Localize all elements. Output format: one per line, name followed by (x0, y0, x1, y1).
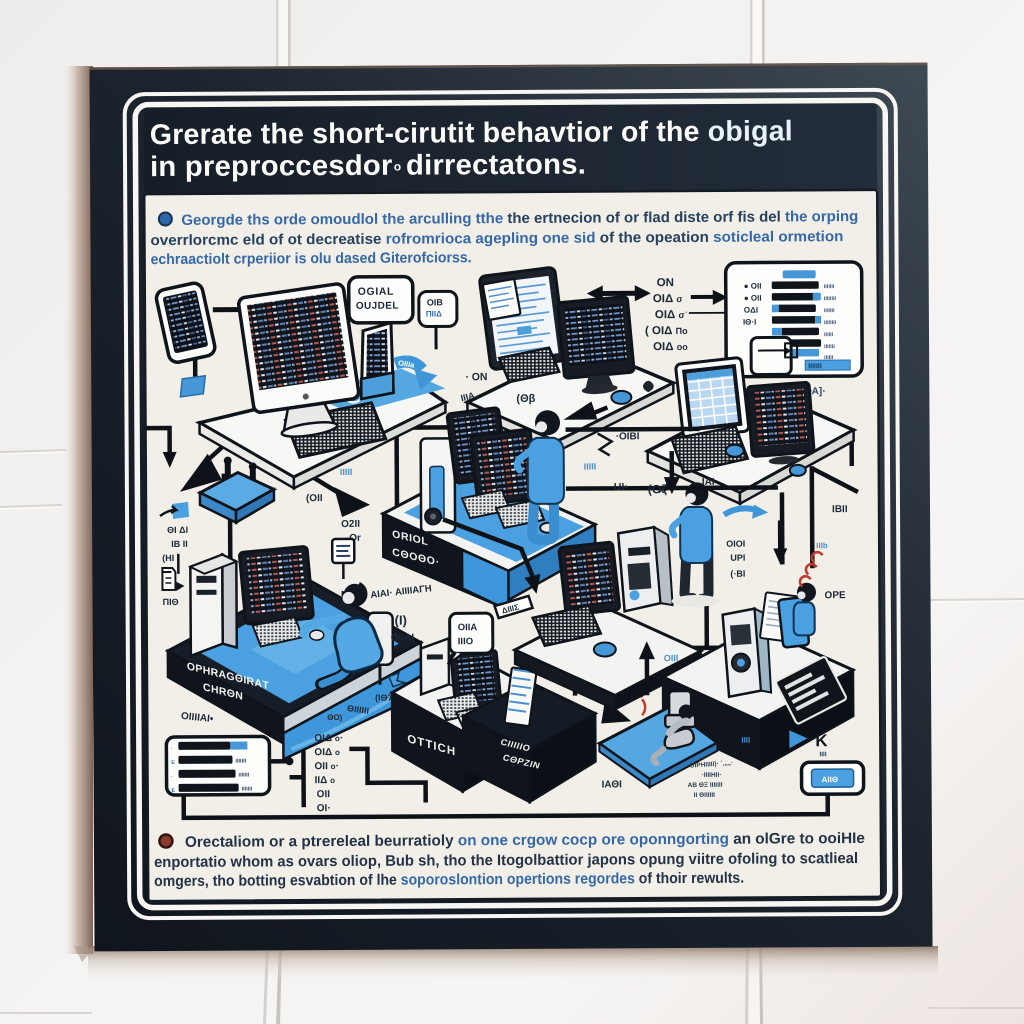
svg-text:OІΔ o·: OІΔ o· (314, 733, 343, 744)
svg-text:OІІΑ: OІІΑ (458, 622, 478, 633)
svg-text:(·ΒІ: (·ΒІ (730, 569, 745, 579)
svg-text:ІІІb: ІІІb (816, 541, 828, 550)
svg-text:echraactiolt crperiior is olu: echraactiolt crperiior is olu dased Gite… (151, 250, 472, 268)
svg-text:ІІІІІІІ: ІІІІІІІ (824, 284, 835, 290)
svg-text:in preproccesdor ͦ dirrectaton: in preproccesdor ͦ dirrectatons. (150, 149, 586, 184)
svg-text:ΟІΟІ: ΟІΟІ (726, 539, 745, 549)
svg-text:Grerate the short-cirutit beh: Grerate the short-cirutit behavtior of t… (150, 115, 793, 151)
svg-text:O΢2ІІ: O΢2ІІ (341, 519, 360, 530)
svg-text:ON: ON (657, 277, 674, 289)
svg-text:● ОІІ: ● ОІІ (744, 294, 762, 303)
svg-text:·ΟІΒІ: ·ΟІΒІ (616, 431, 640, 442)
svg-text:ІІІІІІІ: ІІІІІІІ (824, 308, 835, 314)
svg-text:ІΑΘІ: ІΑΘІ (602, 779, 623, 790)
svg-text:(ΗІ |: (ΗІ | (162, 553, 179, 563)
svg-text:(Ι): (Ι) (395, 613, 407, 628)
svg-text:OUJDEL: OUJDEL (356, 301, 399, 312)
svg-text:ΠІΘ: ΠІΘ (163, 597, 179, 607)
svg-text:( OIΔ Πο: ( OIΔ Πο (645, 325, 688, 337)
svg-text:ІІІІІІІІ: ІІІІІІІІ (824, 296, 837, 302)
svg-text:ІІІO: ІІІO (458, 636, 473, 647)
svg-text:ІІІІІІІ: ІІІІІІІ (808, 363, 822, 370)
svg-text:ІΑІ: ІΑІ (702, 477, 715, 488)
svg-text:ІІІІІ: ІІІІІ (584, 462, 597, 472)
svg-text:ІІІІIІІ: ІІІІIІІ (235, 759, 246, 765)
svg-text:ІΒ ІІ: ІΒ ІІ (171, 539, 188, 549)
svg-text:ΟΡЕ: ΟΡЕ (824, 590, 846, 601)
svg-text:OIΒ: OIΒ (427, 297, 444, 307)
svg-text:ΘІ ΔІ: ΘІ ΔІ (167, 525, 188, 535)
svg-text:OIΔ σˈ: OIΔ σˈ (655, 309, 688, 321)
svg-text:ΑВ ΘΞ ІІІІІІІ: ΑВ ΘΞ ІІІІІІІ (688, 782, 723, 789)
svg-text:ІІІІ: ІІІІ (741, 736, 750, 745)
svg-text:ІІІІ: ІІІІ (819, 751, 826, 758)
svg-text:ІІΔ o: ІІΔ o (315, 775, 336, 786)
svg-text:OІІ o·: OІІ o· (314, 761, 338, 772)
svg-text:OІІ: OІІ (317, 789, 331, 800)
svg-text:omgers, tho botting esvabtio: omgers, tho botting esvabtion of lhe sop… (154, 870, 744, 890)
svg-text:ІІІІІІІ: ІІІІІІІ (824, 344, 835, 350)
svg-text:UІ•: UІ• (614, 481, 629, 493)
svg-text:(Ο̷ζ: (Ο̷ζ (648, 482, 667, 496)
svg-text:ІІIІIІІ: ІІIІIІІ (239, 773, 250, 779)
svg-text:UΡІ: UΡІ (730, 553, 745, 563)
svg-text:· OΝ: · OΝ (465, 371, 487, 383)
svg-text:OІΔ o: OІΔ o (314, 747, 340, 758)
svg-text:ΟІІΑІ: ΟІІΑІ (391, 633, 415, 644)
svg-text:OGIAL: OGIAL (358, 286, 394, 298)
svg-text:ІΘ·І: ІΘ·І (743, 318, 756, 327)
svg-text:·ІІІІΗІІ·: ·ІІІІΗІІ· (702, 772, 722, 779)
svg-text:ІΒІІ: ІΒІІ (832, 504, 848, 515)
svg-text:(ΟІІ: (ΟІІ (306, 493, 323, 504)
svg-text:OIΔ οο: OIΔ οο (653, 341, 688, 353)
svg-text:ІІІІІІ: ІІІІІІ (824, 332, 834, 338)
svg-text:● ОІІ: ● ОІІ (744, 282, 762, 291)
svg-text:Κ: Κ (815, 731, 828, 750)
svg-text:ІІІІІ: ІІІІІ (340, 467, 353, 477)
svg-text:ΟІІІ: ΟІІІ (664, 653, 679, 663)
svg-text:(ІΘ7: (ІΘ7 (375, 693, 393, 703)
svg-text:ΘΟ): ΘΟ) (327, 713, 342, 722)
svg-text:OIΔ σ: OIΔ σ (653, 293, 683, 305)
svg-text:ІІ ΘІІІІІІ: ІІ ΘІІІІІІ (694, 792, 716, 799)
svg-text:(Θβ: (Θβ (516, 393, 535, 405)
svg-text:ΠIIΔ: ΠIIΔ (426, 309, 442, 318)
svg-text:ІІІІІІІІ: ІІІІІІІІ (824, 320, 837, 326)
svg-text:ОΔІ: ОΔІ (744, 306, 758, 315)
svg-text:OІ·: OІ· (317, 803, 331, 814)
svg-text:ІІІІIІІ: ІІІІIІІ (242, 786, 253, 792)
svg-text:ΑІІΘ: ΑІІΘ (822, 775, 839, 784)
